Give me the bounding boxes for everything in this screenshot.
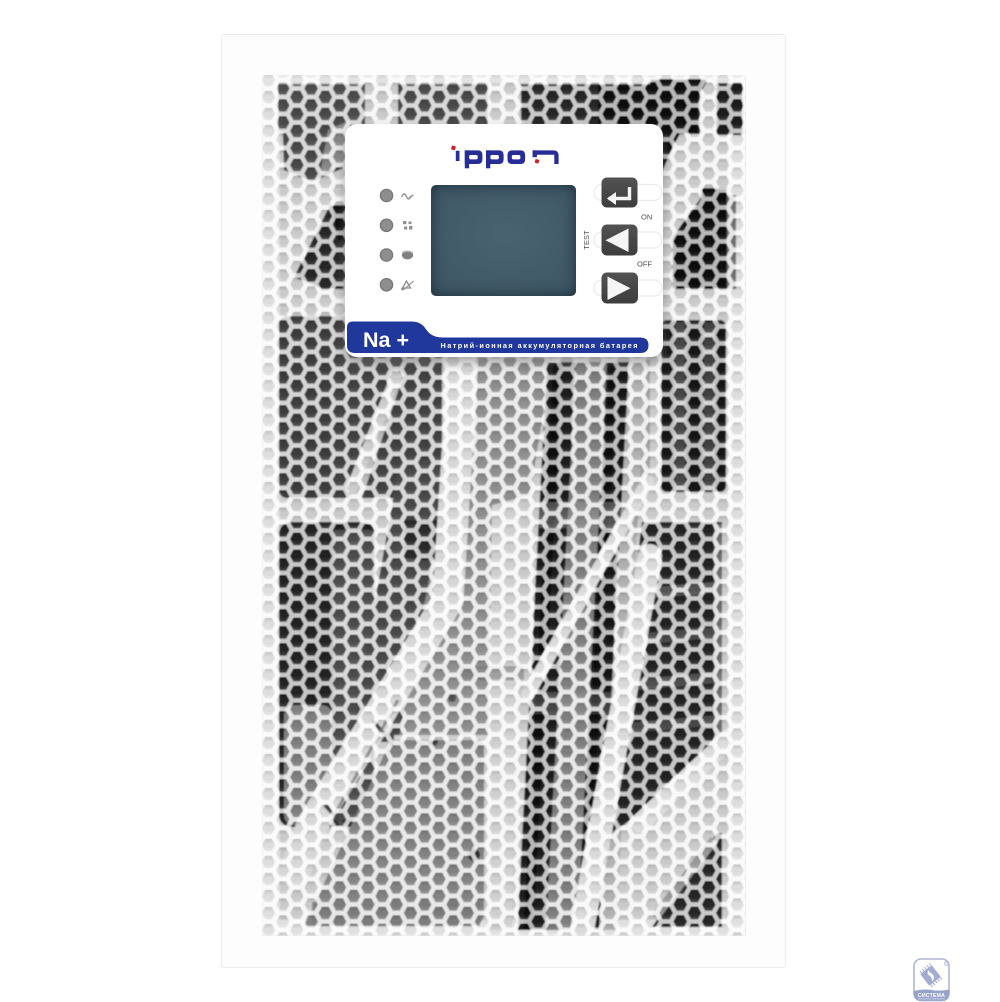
svg-text:Натрий-ионная аккумуляторная б: Натрий-ионная аккумуляторная батарея [441,341,638,350]
svg-text:TEST: TEST [582,230,591,250]
svg-text:OFF: OFF [637,260,652,269]
svg-text:ON: ON [641,213,652,222]
svg-text:Na +: Na + [363,328,409,352]
